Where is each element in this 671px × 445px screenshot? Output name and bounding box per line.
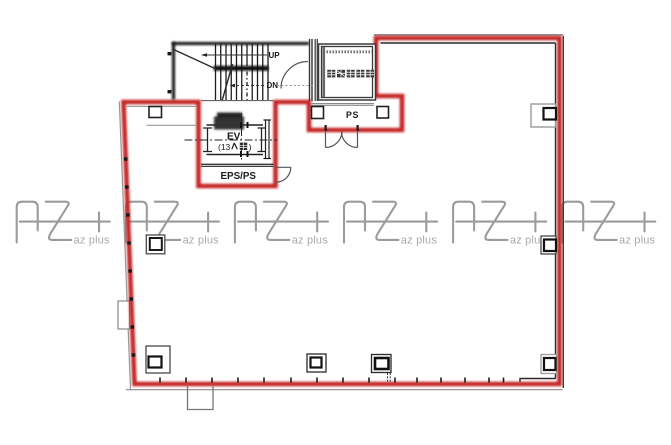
svg-text:PS: PS (346, 110, 359, 120)
svg-text:EPS/PS: EPS/PS (221, 171, 257, 182)
svg-text:DN: DN (267, 81, 279, 90)
svg-text:(13: (13 (218, 142, 231, 152)
svg-text:): ) (249, 142, 252, 152)
svg-text:UP: UP (269, 51, 281, 60)
